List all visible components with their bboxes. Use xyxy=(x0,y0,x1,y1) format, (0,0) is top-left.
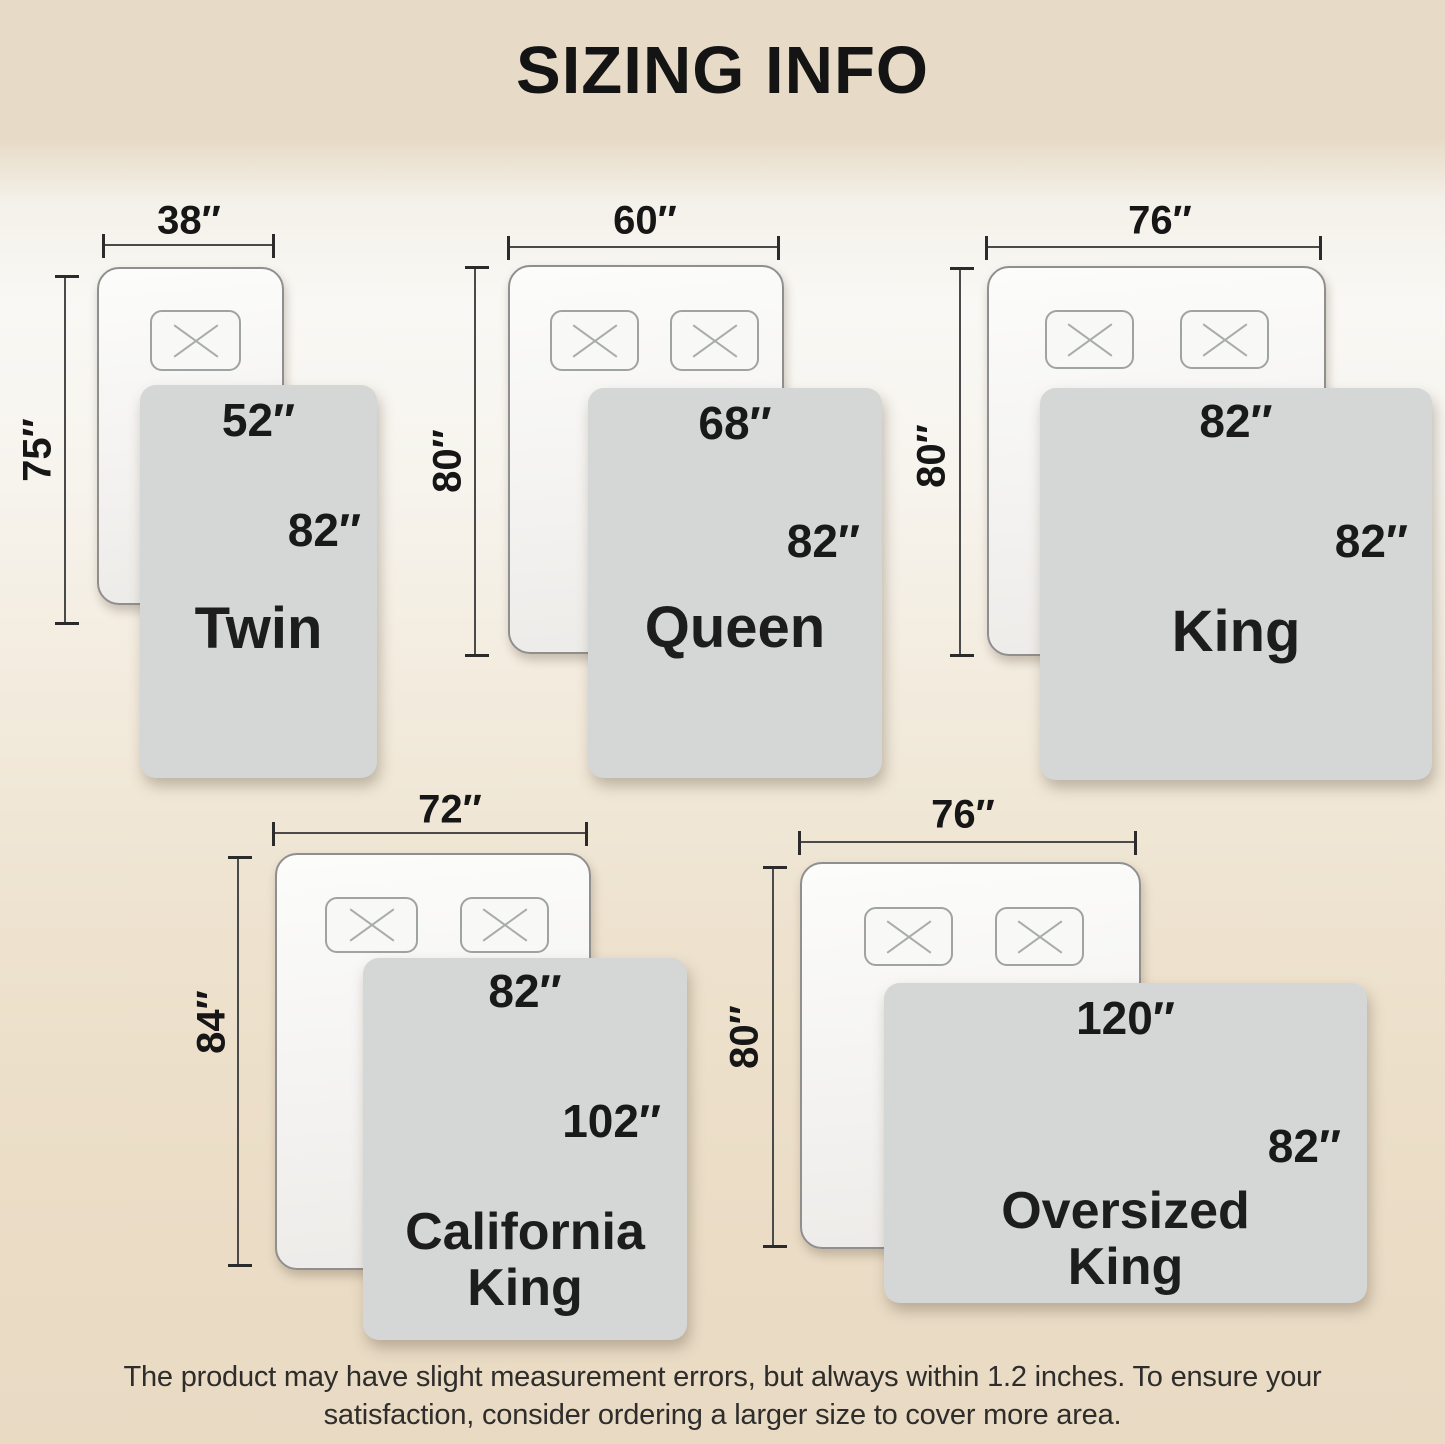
twin-width-dim-line xyxy=(102,244,275,246)
oversized-king-blanket-height-label: 82″ xyxy=(1268,1119,1341,1173)
pillow xyxy=(1180,310,1269,369)
pillow-x-icon xyxy=(693,325,737,357)
king-height-dim-line xyxy=(959,268,961,656)
oversized-king-blanket: 120″ 82″ Oversized King xyxy=(884,983,1367,1303)
pillow xyxy=(550,310,639,371)
king-width-dim-label: 76″ xyxy=(1128,199,1192,244)
pillow xyxy=(864,907,953,966)
california-king-height-dim-label: 84″ xyxy=(190,990,235,1054)
california-king-width-dim-label: 72″ xyxy=(418,788,482,833)
queen-width-dim-line xyxy=(507,246,780,248)
pillow-x-icon xyxy=(1068,324,1112,356)
king-blanket-width-label: 82″ xyxy=(1040,394,1432,448)
disclaimer-text: The product may have slight measurement … xyxy=(0,1358,1445,1434)
queen-width-dim-label: 60″ xyxy=(613,199,677,244)
queen-blanket-height-label: 82″ xyxy=(787,514,860,568)
twin-width-dim-label: 38″ xyxy=(157,199,221,244)
king-size-name: King xyxy=(1040,600,1432,664)
twin-blanket-height-label: 82″ xyxy=(288,503,361,557)
twin-size-name: Twin xyxy=(140,597,377,661)
pillow-x-icon xyxy=(887,921,931,953)
oversized-king-blanket-width-label: 120″ xyxy=(884,991,1367,1045)
pillow xyxy=(150,310,241,371)
disclaimer-line-2: satisfaction, consider ordering a larger… xyxy=(0,1396,1445,1434)
pillow xyxy=(1045,310,1134,369)
pillow-x-icon xyxy=(350,909,394,941)
twin-blanket-width-label: 52″ xyxy=(140,393,377,447)
oversized-king-height-dim-line xyxy=(772,867,774,1247)
california-king-height-dim-line xyxy=(237,857,239,1266)
oversized-king-size-name: Oversized King xyxy=(884,1183,1367,1295)
california-king-blanket-width-label: 82″ xyxy=(363,964,687,1018)
pillow-x-icon xyxy=(174,325,218,357)
queen-blanket: 68″ 82″ Queen xyxy=(588,388,882,778)
oversized-king-width-dim-label: 76″ xyxy=(931,793,995,838)
header-band: SIZING INFO xyxy=(0,0,1445,140)
twin-blanket: 52″ 82″ Twin xyxy=(140,385,377,778)
disclaimer-line-1: The product may have slight measurement … xyxy=(0,1358,1445,1396)
king-height-dim-label: 80″ xyxy=(910,424,955,488)
california-king-size-name: California King xyxy=(363,1204,687,1316)
sizing-info-infographic: SIZING INFO 38″ 75″ 52″ 82″ Twin 60″ 80″ xyxy=(0,0,1445,1444)
page-title: SIZING INFO xyxy=(516,32,929,109)
california-king-blanket: 82″ 102″ California King xyxy=(363,958,687,1340)
queen-height-dim-line xyxy=(474,267,476,656)
pillow xyxy=(325,897,418,953)
pillow xyxy=(995,907,1084,966)
pillow-x-icon xyxy=(483,909,527,941)
pillow-x-icon xyxy=(573,325,617,357)
oversized-king-height-dim-label: 80″ xyxy=(723,1005,768,1069)
king-blanket-height-label: 82″ xyxy=(1335,514,1408,568)
queen-height-dim-label: 80″ xyxy=(426,429,471,493)
pillow-x-icon xyxy=(1018,921,1062,953)
pillow xyxy=(670,310,759,371)
queen-size-name: Queen xyxy=(588,596,882,660)
king-blanket: 82″ 82″ King xyxy=(1040,388,1432,780)
twin-height-dim-label: 75″ xyxy=(16,418,61,482)
california-king-blanket-height-label: 102″ xyxy=(562,1094,661,1148)
pillow-x-icon xyxy=(1203,324,1247,356)
twin-height-dim-line xyxy=(64,276,66,624)
oversized-king-width-dim-line xyxy=(798,841,1137,843)
queen-blanket-width-label: 68″ xyxy=(588,396,882,450)
king-width-dim-line xyxy=(985,246,1322,248)
pillow xyxy=(460,897,549,953)
